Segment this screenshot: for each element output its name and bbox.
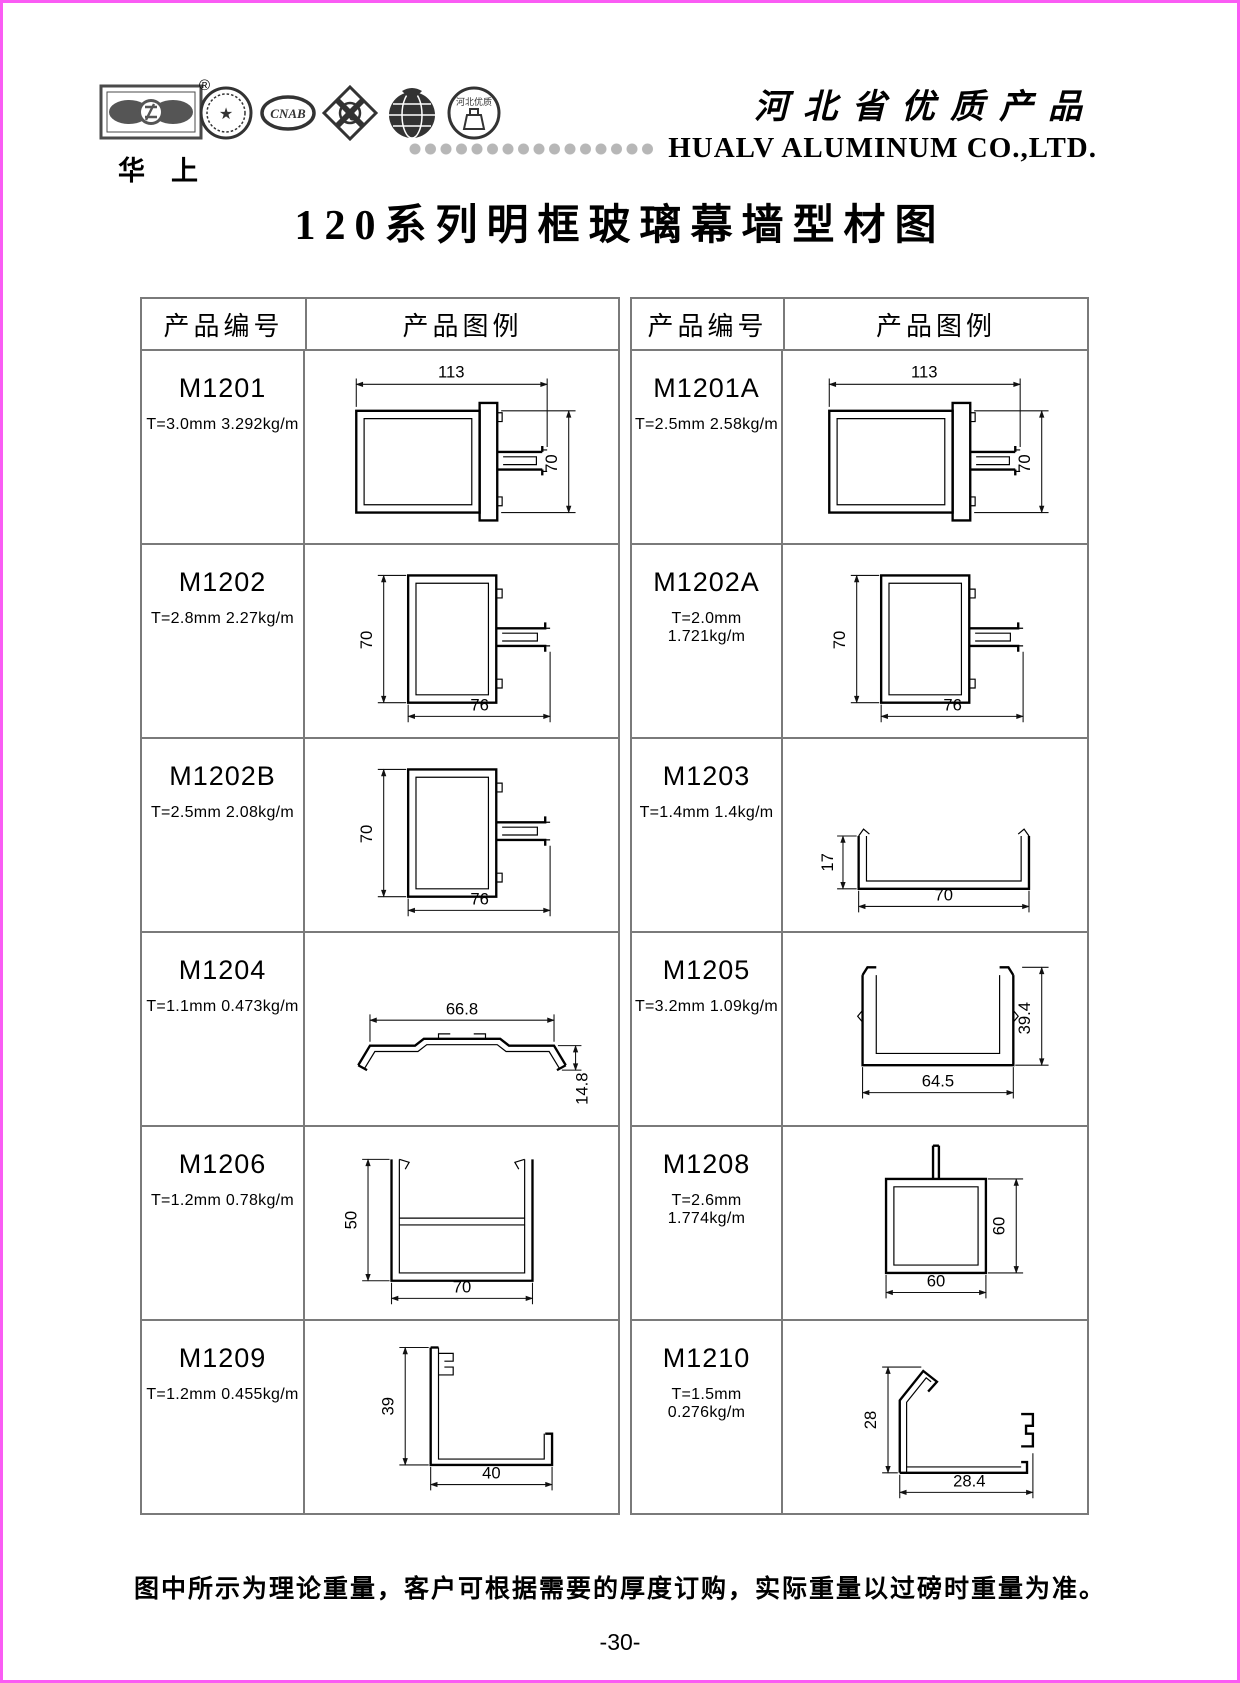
- column-header-product-figure: 产品图例: [785, 299, 1087, 349]
- slogan-cn: 河北省优质产品: [408, 79, 1097, 128]
- certification-seal-icon: ★: [198, 85, 254, 141]
- product-spec: T=1.4mm 1.4kg/m: [632, 804, 781, 822]
- svg-text:70: 70: [452, 1278, 471, 1297]
- quality-clover-logo-icon: Q: [322, 85, 378, 141]
- column-header-product-code: 产品编号: [632, 299, 785, 349]
- product-code: M1209: [142, 1343, 303, 1374]
- product-figure-cell: 113 70: [783, 351, 1087, 543]
- catalog-page: ® 华上 ★ CNAB: [0, 0, 1240, 1683]
- profile-diagram-m1201: 113 70: [312, 354, 612, 540]
- svg-text:66.8: 66.8: [445, 999, 477, 1018]
- svg-text:Q: Q: [345, 106, 355, 121]
- table-row: M1202B T=2.5mm 2.08kg/m 70 76: [142, 739, 618, 933]
- table-row: M1210 T=1.5mm 0.276kg/m 28 28.4: [632, 1321, 1087, 1513]
- profile-diagram-m1206: 50 70: [312, 1130, 612, 1316]
- svg-text:76: 76: [943, 696, 962, 715]
- profile-diagram-m1201a: 113 70: [787, 354, 1083, 540]
- product-code: M1210: [632, 1343, 781, 1374]
- hualv-eye-logo: ® 华上: [98, 83, 210, 188]
- product-code: M1202: [142, 567, 303, 598]
- product-figure-cell: 50 70: [305, 1127, 618, 1319]
- product-spec: T=2.6mm 1.774kg/m: [632, 1192, 781, 1228]
- product-code-cell: M1205 T=3.2mm 1.09kg/m: [632, 933, 783, 1125]
- table-header-row: 产品编号 产品图例: [142, 299, 618, 351]
- svg-text:70: 70: [356, 631, 375, 650]
- table-row: M1209 T=1.2mm 0.455kg/m 39 40: [142, 1321, 618, 1513]
- hualv-eye-logo-icon: [98, 83, 204, 141]
- product-code-cell: M1206 T=1.2mm 0.78kg/m: [142, 1127, 305, 1319]
- product-spec: T=2.0mm 1.721kg/m: [632, 610, 781, 646]
- svg-text:28.4: 28.4: [953, 1472, 985, 1491]
- footer-note: 图中所示为理论重量，客户可根据需要的厚度订购，实际重量以过磅时重量为准。: [3, 1569, 1237, 1605]
- svg-text:76: 76: [470, 890, 489, 909]
- column-header-product-figure: 产品图例: [307, 299, 618, 349]
- product-code-cell: M1202 T=2.8mm 2.27kg/m: [142, 545, 305, 737]
- product-code-cell: M1209 T=1.2mm 0.455kg/m: [142, 1321, 305, 1513]
- profile-diagram-m1203: 17 70: [787, 742, 1083, 928]
- cnab-logo-icon: CNAB: [260, 85, 316, 141]
- product-figure-cell: 70 76: [305, 545, 618, 737]
- product-spec: T=1.2mm 0.455kg/m: [142, 1386, 303, 1404]
- table-row: M1203 T=1.4mm 1.4kg/m 17 70: [632, 739, 1087, 933]
- table-row: M1202A T=2.0mm 1.721kg/m 70 76: [632, 545, 1087, 739]
- svg-text:76: 76: [470, 696, 489, 715]
- profile-diagram-m1202b: 70 76: [312, 742, 612, 928]
- profile-diagram-m1209: 39 40: [312, 1324, 612, 1510]
- product-spec: T=1.5mm 0.276kg/m: [632, 1386, 781, 1422]
- product-figure-cell: 113 70: [305, 351, 618, 543]
- svg-text:14.8: 14.8: [572, 1073, 591, 1105]
- profile-diagram-m1205: 39.4 64.5: [787, 936, 1083, 1122]
- product-code: M1202B: [142, 761, 303, 792]
- svg-text:70: 70: [356, 825, 375, 844]
- product-code-cell: M1210 T=1.5mm 0.276kg/m: [632, 1321, 783, 1513]
- product-code: M1205: [632, 955, 781, 986]
- header: ® 华上 ★ CNAB: [98, 75, 1097, 185]
- product-spec: T=2.5mm 2.58kg/m: [632, 416, 781, 434]
- product-code: M1202A: [632, 567, 781, 598]
- product-figure-cell: 70 76: [305, 739, 618, 931]
- table-row: M1206 T=1.2mm 0.78kg/m 50 70: [142, 1127, 618, 1321]
- product-code-cell: M1202B T=2.5mm 2.08kg/m: [142, 739, 305, 931]
- product-code: M1201: [142, 373, 303, 404]
- profile-diagram-m1204: 66.8 14.8: [312, 936, 612, 1122]
- product-code-cell: M1204 T=1.1mm 0.473kg/m: [142, 933, 305, 1125]
- column-header-product-code: 产品编号: [142, 299, 307, 349]
- product-figure-cell: 39.4 64.5: [783, 933, 1087, 1125]
- product-code: M1203: [632, 761, 781, 792]
- svg-text:70: 70: [935, 886, 954, 905]
- svg-text:113: 113: [437, 362, 464, 381]
- brand-name: 华上: [98, 149, 210, 188]
- svg-text:50: 50: [341, 1211, 360, 1230]
- profile-diagram-m1208: 60 60: [787, 1130, 1083, 1316]
- product-code-cell: M1201 T=3.0mm 3.292kg/m: [142, 351, 305, 543]
- header-right: 河北省优质产品 HUALV ALUMINUM CO.,LTD.: [408, 79, 1097, 165]
- product-code-cell: M1202A T=2.0mm 1.721kg/m: [632, 545, 783, 737]
- product-table-right: 产品编号 产品图例 M1201A T=2.5mm 2.58kg/m 113 70: [630, 297, 1089, 1515]
- svg-text:113: 113: [911, 362, 938, 381]
- svg-text:17: 17: [818, 853, 837, 872]
- page-title: 120系列明框玻璃幕墙型材图: [3, 191, 1237, 252]
- profile-diagram-m1202a: 70 76: [787, 548, 1083, 734]
- product-code-cell: M1208 T=2.6mm 1.774kg/m: [632, 1127, 783, 1319]
- svg-text:64.5: 64.5: [922, 1072, 954, 1091]
- table-row: M1204 T=1.1mm 0.473kg/m 66.8 14.8: [142, 933, 618, 1127]
- svg-text:★: ★: [219, 106, 233, 123]
- product-code: M1208: [632, 1149, 781, 1180]
- product-spec: T=3.0mm 3.292kg/m: [142, 416, 303, 434]
- product-code: M1206: [142, 1149, 303, 1180]
- table-row: M1202 T=2.8mm 2.27kg/m 70 76: [142, 545, 618, 739]
- product-figure-cell: 28 28.4: [783, 1321, 1087, 1513]
- product-code: M1201A: [632, 373, 781, 404]
- product-figure-cell: 70 76: [783, 545, 1087, 737]
- svg-text:39: 39: [378, 1397, 397, 1416]
- svg-text:40: 40: [482, 1464, 501, 1483]
- svg-text:70: 70: [541, 454, 560, 473]
- company-line: HUALV ALUMINUM CO.,LTD.: [408, 132, 1097, 165]
- svg-text:39.4: 39.4: [1015, 1002, 1034, 1034]
- table-header-row: 产品编号 产品图例: [632, 299, 1087, 351]
- product-spec: T=1.1mm 0.473kg/m: [142, 998, 303, 1016]
- product-spec: T=3.2mm 1.09kg/m: [632, 998, 781, 1016]
- svg-text:60: 60: [990, 1217, 1009, 1236]
- table-row: M1201 T=3.0mm 3.292kg/m 113 70: [142, 351, 618, 545]
- product-figure-cell: 39 40: [305, 1321, 618, 1513]
- product-code-cell: M1201A T=2.5mm 2.58kg/m: [632, 351, 783, 543]
- product-figure-cell: 60 60: [783, 1127, 1087, 1319]
- profile-diagram-m1202: 70 76: [312, 548, 612, 734]
- svg-text:60: 60: [927, 1272, 946, 1291]
- product-figure-cell: 66.8 14.8: [305, 933, 618, 1125]
- table-row: M1201A T=2.5mm 2.58kg/m 113 70: [632, 351, 1087, 545]
- company-name-en: HUALV ALUMINUM CO.,LTD.: [668, 132, 1097, 165]
- product-code-cell: M1203 T=1.4mm 1.4kg/m: [632, 739, 783, 931]
- dot-separator: [408, 142, 656, 156]
- product-spec: T=2.8mm 2.27kg/m: [142, 610, 303, 628]
- product-spec: T=1.2mm 0.78kg/m: [142, 1192, 303, 1210]
- table-row: M1205 T=3.2mm 1.09kg/m 39.4 64.5: [632, 933, 1087, 1127]
- profile-diagram-m1210: 28 28.4: [787, 1324, 1083, 1510]
- svg-text:CNAB: CNAB: [270, 106, 306, 121]
- product-table-left: 产品编号 产品图例 M1201 T=3.0mm 3.292kg/m 113 70: [140, 297, 620, 1515]
- product-code: M1204: [142, 955, 303, 986]
- product-figure-cell: 17 70: [783, 739, 1087, 931]
- product-spec: T=2.5mm 2.08kg/m: [142, 804, 303, 822]
- table-row: M1208 T=2.6mm 1.774kg/m 60 60: [632, 1127, 1087, 1321]
- svg-text:70: 70: [830, 631, 849, 650]
- svg-text:28: 28: [861, 1411, 880, 1430]
- svg-text:70: 70: [1015, 454, 1034, 473]
- page-number: -30-: [3, 1629, 1237, 1656]
